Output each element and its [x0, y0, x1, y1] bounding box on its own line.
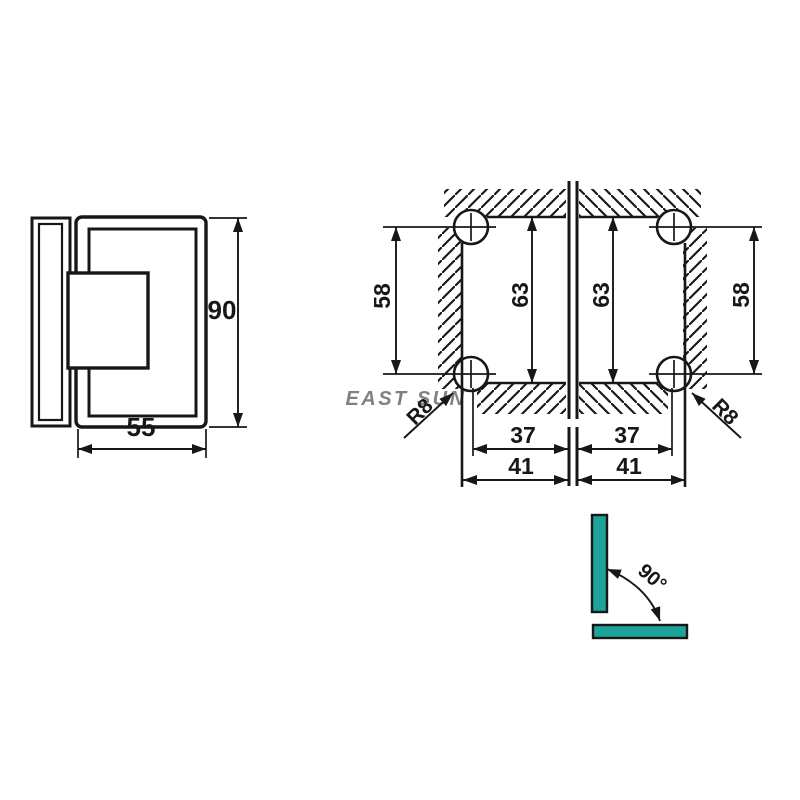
hinge-knuckle [68, 273, 148, 368]
dimension-63-left: 63 [507, 217, 533, 383]
dim-37-right-value: 37 [614, 422, 640, 448]
angle-value: 90° [633, 560, 670, 596]
dimension-41-left: 41 [463, 453, 568, 480]
dim-63-left-value: 63 [507, 282, 533, 308]
angle-diagram: 90° [592, 515, 687, 638]
dim-63-right-value: 63 [588, 282, 614, 308]
hatch-right-bottom [579, 383, 668, 414]
dim-37-left-value: 37 [510, 422, 536, 448]
width-value: 55 [127, 412, 156, 442]
dim-58-right-value: 58 [728, 282, 754, 308]
dimension-height-90: 90 [208, 218, 247, 427]
hatch-left-bottom [477, 383, 566, 414]
hinge-technical-drawing: 90 55 [0, 0, 800, 800]
wall-plate-inner-line [39, 224, 62, 420]
glass-gap-lines [569, 181, 577, 486]
dimension-63-right: 63 [588, 217, 614, 383]
drill-holes [454, 210, 691, 391]
glass-panel-vertical [592, 515, 607, 612]
front-view-drill-template: 58 63 63 58 37 37 [369, 181, 762, 487]
dimension-41-right: 41 [578, 453, 685, 480]
dimension-58-right: 58 [728, 227, 754, 374]
dim-41-right-value: 41 [616, 453, 642, 479]
dim-58-left-value: 58 [369, 283, 395, 309]
cutout-edges [462, 217, 685, 487]
height-value: 90 [208, 295, 237, 325]
drawing-page: 90 55 [0, 0, 800, 800]
dimension-58-left: 58 [369, 227, 396, 374]
watermark-text: EAST SUN [345, 388, 466, 410]
radius-right-value: R8 [707, 394, 742, 429]
glass-panel-horizontal [593, 625, 687, 638]
side-view: 90 55 [32, 217, 247, 458]
radius-callout-right: R8 [692, 393, 743, 438]
dim-41-left-value: 41 [508, 453, 534, 479]
